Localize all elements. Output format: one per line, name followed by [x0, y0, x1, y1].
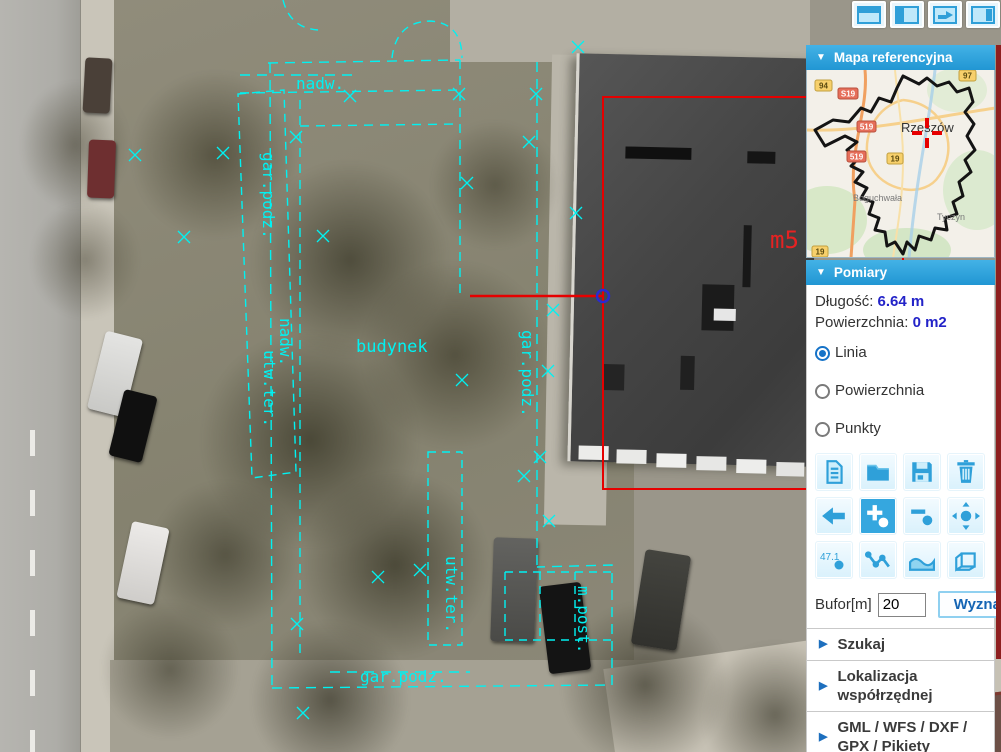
chevron-right-icon: ▶: [819, 728, 827, 747]
tree: [30, 200, 140, 320]
layout-left-icon: [895, 6, 919, 24]
parked-car: [490, 537, 538, 642]
area-value: 0 m2: [913, 314, 947, 331]
arrow-left-icon: [821, 503, 847, 529]
polyline-button[interactable]: [859, 541, 897, 579]
buffer-row: Bufor[m] Wyznacz: [815, 591, 986, 618]
reference-map-title: Mapa referencyjna: [834, 50, 953, 65]
layout-left-panel-button[interactable]: [890, 1, 924, 28]
layout-toolbar: [852, 1, 1000, 28]
area-label: Powierzchnia:: [815, 314, 908, 331]
parked-car: [83, 57, 113, 113]
remove-point-button[interactable]: [903, 497, 941, 535]
collapse-right-panel-button[interactable]: [928, 1, 962, 28]
svg-text:519: 519: [850, 153, 864, 162]
length-row: Długość: 6.64 m: [815, 291, 986, 312]
roof-skylight: [776, 462, 804, 477]
new-measurement-button[interactable]: [815, 453, 853, 491]
open-folder-button[interactable]: [859, 453, 897, 491]
roof-skylight: [578, 445, 608, 460]
area-row: Powierzchnia: 0 m2: [815, 312, 986, 333]
radio-dot: [815, 346, 830, 361]
tree: [360, 260, 550, 450]
chevron-down-icon: ▼: [816, 267, 826, 278]
svg-text:19: 19: [816, 248, 825, 257]
roof-skylight: [616, 449, 646, 464]
roof-skylight: [656, 453, 686, 468]
layout-top-icon: [857, 6, 881, 24]
document-icon: [821, 459, 847, 485]
layout-right-icon: [971, 6, 995, 24]
profile-button[interactable]: [903, 541, 941, 579]
volume-3d-button[interactable]: [947, 541, 985, 579]
show-values-button[interactable]: 47.1: [815, 541, 853, 579]
reference-map-header[interactable]: ▼ Mapa referencyjna: [806, 45, 995, 70]
svg-text:19: 19: [891, 155, 900, 164]
pavement: [450, 0, 810, 62]
add-point-button[interactable]: [859, 497, 897, 535]
sidebar: ▼ Mapa referencyjna: [806, 45, 995, 752]
accordion-gml[interactable]: ▶ GML / WFS / DXF / GPX / Pikiety: [806, 712, 995, 752]
layout-right-panel-button[interactable]: [966, 1, 1000, 28]
roof-pipe: [742, 225, 751, 287]
value-label-icon: 47.1: [819, 547, 849, 573]
svg-text:S19: S19: [841, 90, 856, 99]
polyline-icon: [865, 547, 891, 573]
map-viewport[interactable]: nadw. gar.podz. nadw. utw.ter. budynek g…: [0, 0, 1001, 752]
add-point-icon: [865, 503, 891, 529]
svg-text:94: 94: [819, 82, 828, 91]
radio-dot: [815, 422, 830, 437]
move-point-button[interactable]: [947, 497, 985, 535]
roof-skylight: [714, 308, 736, 320]
tree: [430, 120, 560, 250]
cube-icon: [953, 547, 979, 573]
roof-structure: [680, 356, 695, 390]
radio-dot: [815, 384, 830, 399]
svg-text:97: 97: [963, 72, 972, 81]
roof-structure: [701, 284, 734, 331]
svg-text:519: 519: [860, 123, 874, 132]
radio-powierzchnia[interactable]: Powierzchnia: [815, 379, 924, 403]
chevron-right-icon: ▶: [819, 635, 827, 654]
arrow-right-icon: [933, 6, 957, 24]
measure-tool-grid: 47.1: [815, 453, 986, 579]
chevron-down-icon: ▼: [816, 52, 826, 63]
accordion-lokalizacja-label: Lokalizacja współrzędnej: [837, 667, 986, 705]
accordion-lokalizacja[interactable]: ▶ Lokalizacja współrzędnej: [806, 661, 995, 712]
trash-icon: [953, 459, 979, 485]
radio-punkty[interactable]: Punkty: [815, 417, 881, 441]
accordion-szukaj-label: Szukaj: [837, 635, 885, 654]
profile-wave-icon: [909, 547, 935, 573]
svg-text:Tyczyn: Tyczyn: [937, 212, 965, 222]
building-roof: [567, 53, 818, 466]
roof-vent: [625, 146, 691, 159]
wyznacz-button[interactable]: Wyznacz: [938, 591, 1001, 618]
buffer-label: Bufor[m]: [815, 596, 872, 613]
reference-minimap[interactable]: 94 97 S19 519 519 19 19 Rzeszów Bogu: [806, 70, 995, 258]
radio-powierzchnia-label: Powierzchnia: [835, 379, 924, 403]
tree: [100, 600, 240, 740]
roof-structure: [602, 364, 625, 390]
svg-text:Boguchwała: Boguchwała: [853, 193, 902, 203]
delete-button[interactable]: [947, 453, 985, 491]
roof-skylight: [696, 456, 726, 471]
accordion-szukaj[interactable]: ▶ Szukaj: [806, 629, 995, 661]
chevron-right-icon: ▶: [819, 677, 827, 696]
move-point-icon: [952, 502, 980, 530]
pomiary-title: Pomiary: [834, 265, 887, 280]
pomiary-panel: Długość: 6.64 m Powierzchnia: 0 m2 Linia…: [806, 285, 995, 629]
layout-top-panel-button[interactable]: [852, 1, 886, 28]
radio-punkty-label: Punkty: [835, 417, 881, 441]
save-button[interactable]: [903, 453, 941, 491]
edge-strip: [996, 45, 1001, 659]
length-value: 6.64 m: [878, 293, 925, 310]
folder-icon: [865, 459, 891, 485]
buffer-input[interactable]: [878, 593, 926, 617]
length-label: Długość:: [815, 293, 873, 310]
remove-point-icon: [909, 503, 935, 529]
radio-linia[interactable]: Linia: [815, 341, 867, 365]
road-lane-marking: [30, 430, 35, 752]
pomiary-header[interactable]: ▼ Pomiary: [806, 260, 995, 285]
roof-vent: [747, 151, 775, 164]
parked-car: [87, 140, 116, 199]
save-icon: [909, 459, 935, 485]
radio-linia-label: Linia: [835, 341, 867, 365]
accordion-gml-label: GML / WFS / DXF / GPX / Pikiety: [837, 718, 986, 752]
roof-skylight: [736, 459, 766, 474]
measure-mode-radios: Linia Powierzchnia Punkty: [815, 341, 986, 441]
undo-button[interactable]: [815, 497, 853, 535]
